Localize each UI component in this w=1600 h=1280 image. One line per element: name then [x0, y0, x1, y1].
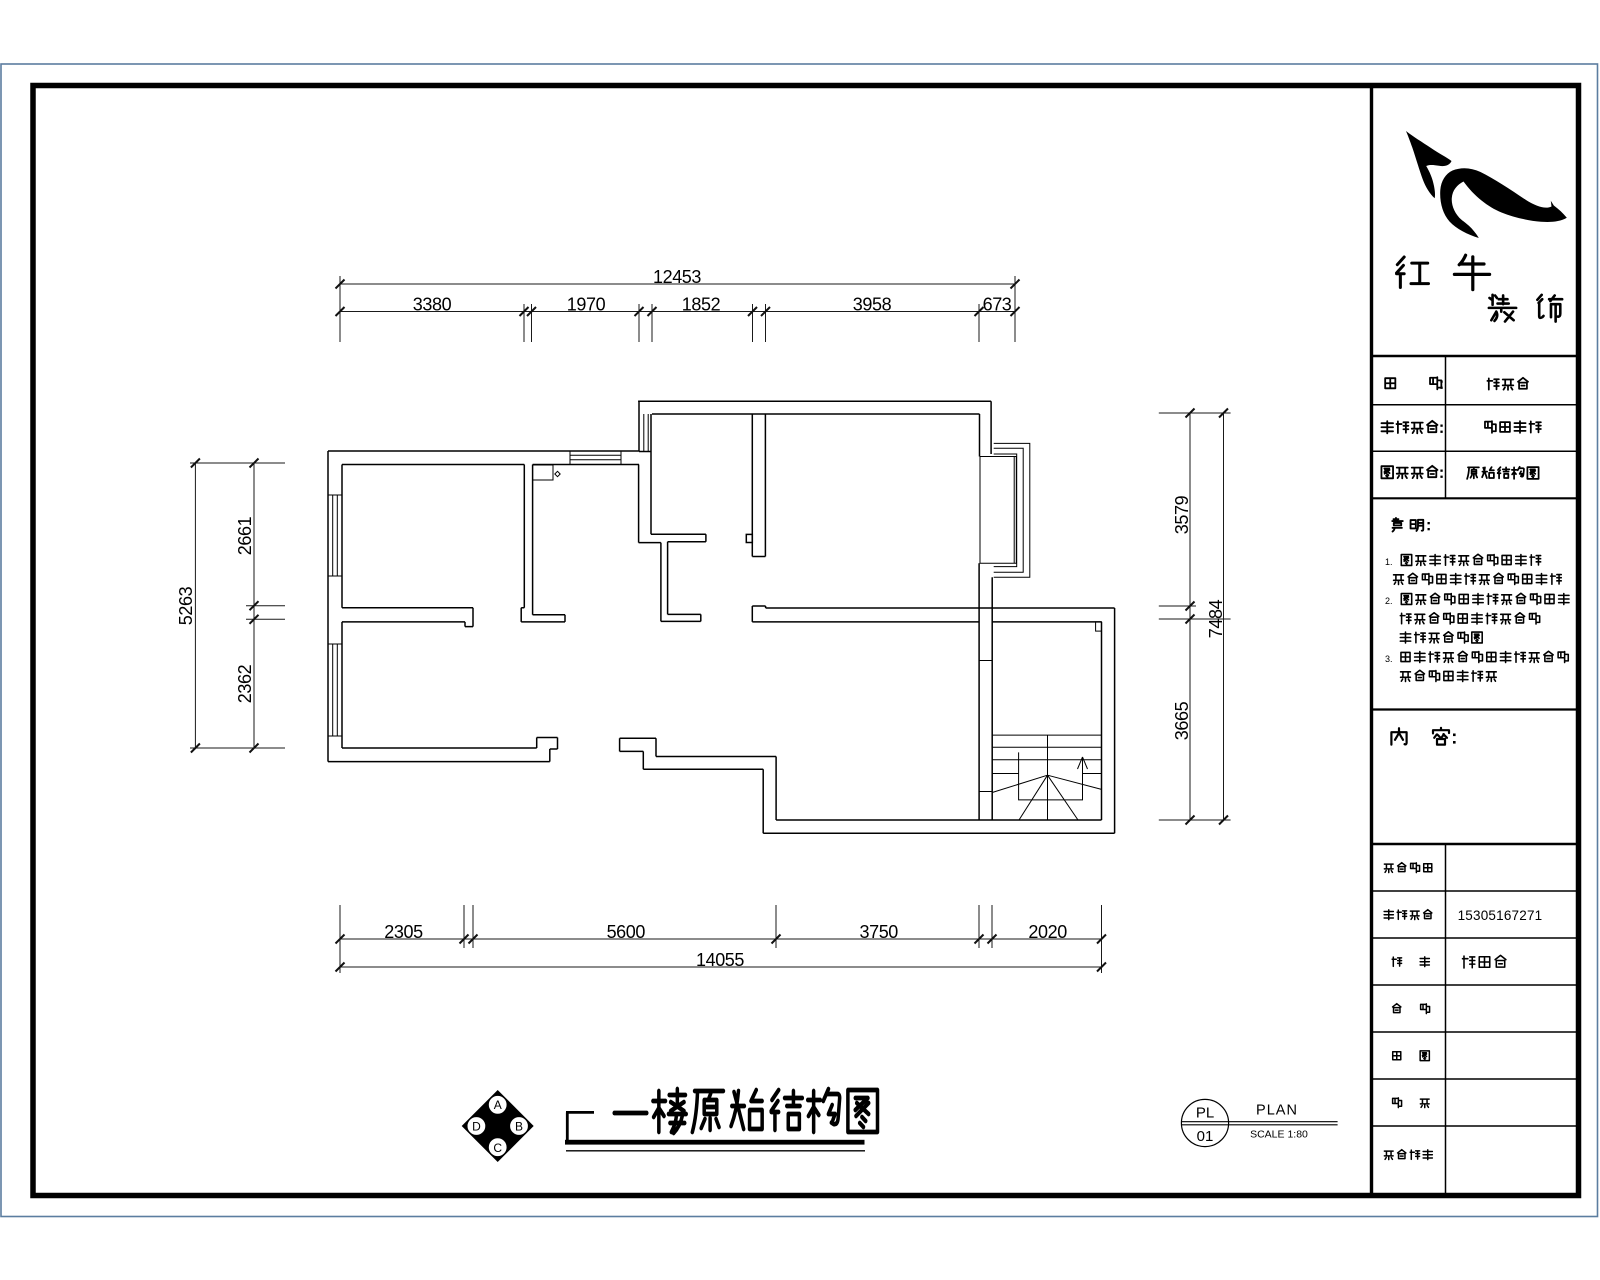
svg-text:D: D: [472, 1120, 481, 1134]
svg-text:673: 673: [983, 295, 1012, 315]
svg-text:3.: 3.: [1385, 654, 1393, 664]
svg-text:3750: 3750: [859, 922, 898, 942]
svg-text:2.: 2.: [1385, 596, 1393, 606]
svg-text:PL: PL: [1196, 1105, 1214, 1122]
svg-text:3958: 3958: [853, 295, 892, 315]
svg-text:C: C: [493, 1141, 502, 1155]
svg-text:SCALE 1:80: SCALE 1:80: [1250, 1129, 1308, 1141]
svg-text:A: A: [494, 1098, 502, 1112]
svg-text:2305: 2305: [384, 922, 423, 942]
svg-text:15305167271: 15305167271: [1458, 908, 1543, 923]
svg-text:01: 01: [1197, 1128, 1214, 1145]
svg-text:3380: 3380: [413, 295, 452, 315]
svg-text:1852: 1852: [682, 295, 721, 315]
svg-text:5600: 5600: [607, 922, 646, 942]
svg-text:7484: 7484: [1206, 599, 1226, 638]
svg-text:3665: 3665: [1172, 701, 1192, 740]
svg-text:14055: 14055: [696, 950, 744, 970]
svg-text:5263: 5263: [176, 586, 196, 625]
svg-text:2362: 2362: [235, 664, 255, 703]
svg-text:2661: 2661: [235, 516, 255, 555]
svg-text:1.: 1.: [1385, 557, 1393, 567]
svg-text:1970: 1970: [567, 295, 606, 315]
svg-text:PLAN: PLAN: [1256, 1103, 1298, 1119]
svg-text:3579: 3579: [1172, 495, 1192, 534]
svg-text:12453: 12453: [653, 267, 701, 287]
svg-text:2020: 2020: [1028, 922, 1067, 942]
svg-text:B: B: [515, 1120, 523, 1134]
